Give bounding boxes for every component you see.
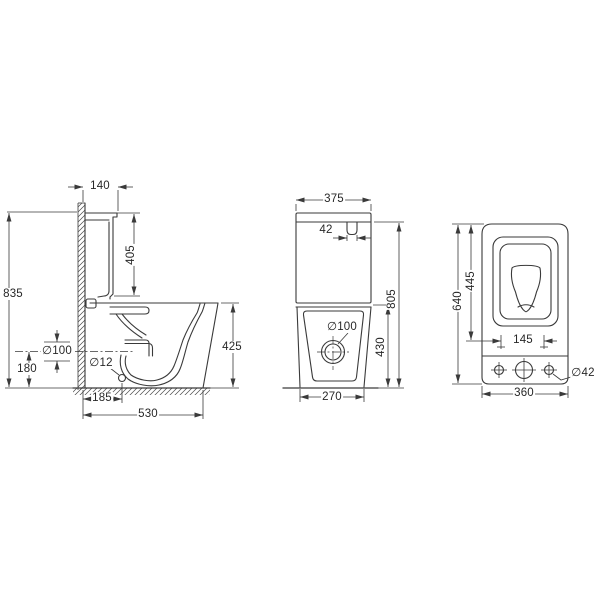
dim-top-overall-width: 360 [513,387,535,399]
dim-side-tank-height: 405 [125,244,137,266]
dim-side-outlet-diameter: ∅100 [41,345,73,357]
trap-outer-curve [120,303,205,386]
body-outline [482,224,568,384]
dim-front-bowl-height: 430 [375,336,387,358]
dim-top-fixing-hole-diameter: ∅42 [570,367,595,379]
dim-side-outlet-height: 180 [16,363,38,375]
dim-side-seat-height: 425 [221,341,243,353]
seat-outline [493,237,558,326]
wall-section [78,203,85,390]
technical-drawing-canvas: 140 405 835 425 ∅100 180 ∅12 185 530 375… [0,0,600,600]
fixing-hole [119,375,126,382]
dim-front-base-width: 270 [321,391,343,403]
bowl-opening [500,244,551,319]
bowl-profile [116,303,218,388]
toilet-dimension-drawing [0,0,600,600]
dim-top-overall-depth: 640 [452,290,464,312]
dim-front-button-width: 42 [318,224,333,236]
dim-front-tank-width: 375 [323,193,345,205]
tank-profile [85,213,117,308]
bowl-front [283,307,378,388]
flush-button [347,222,357,235]
dim-side-overall-depth: 530 [137,408,159,420]
dim-top-seat-length: 445 [465,270,477,292]
dim-front-outlet-diameter: ∅100 [326,321,358,333]
trap-inner-curve [125,304,200,381]
mounting-holes [491,358,557,382]
dim-side-fixing-hole-diameter: ∅12 [88,357,113,369]
side-view [5,187,239,419]
dim-front-overall-height: 805 [386,288,398,310]
dim-side-outlet-offset: 185 [91,392,113,404]
dim-top-fixing-hole-spacing: 145 [512,334,534,346]
top-view [452,224,571,398]
dim-side-overall-height: 835 [2,288,24,300]
dim-side-tank-depth: 140 [89,180,111,192]
